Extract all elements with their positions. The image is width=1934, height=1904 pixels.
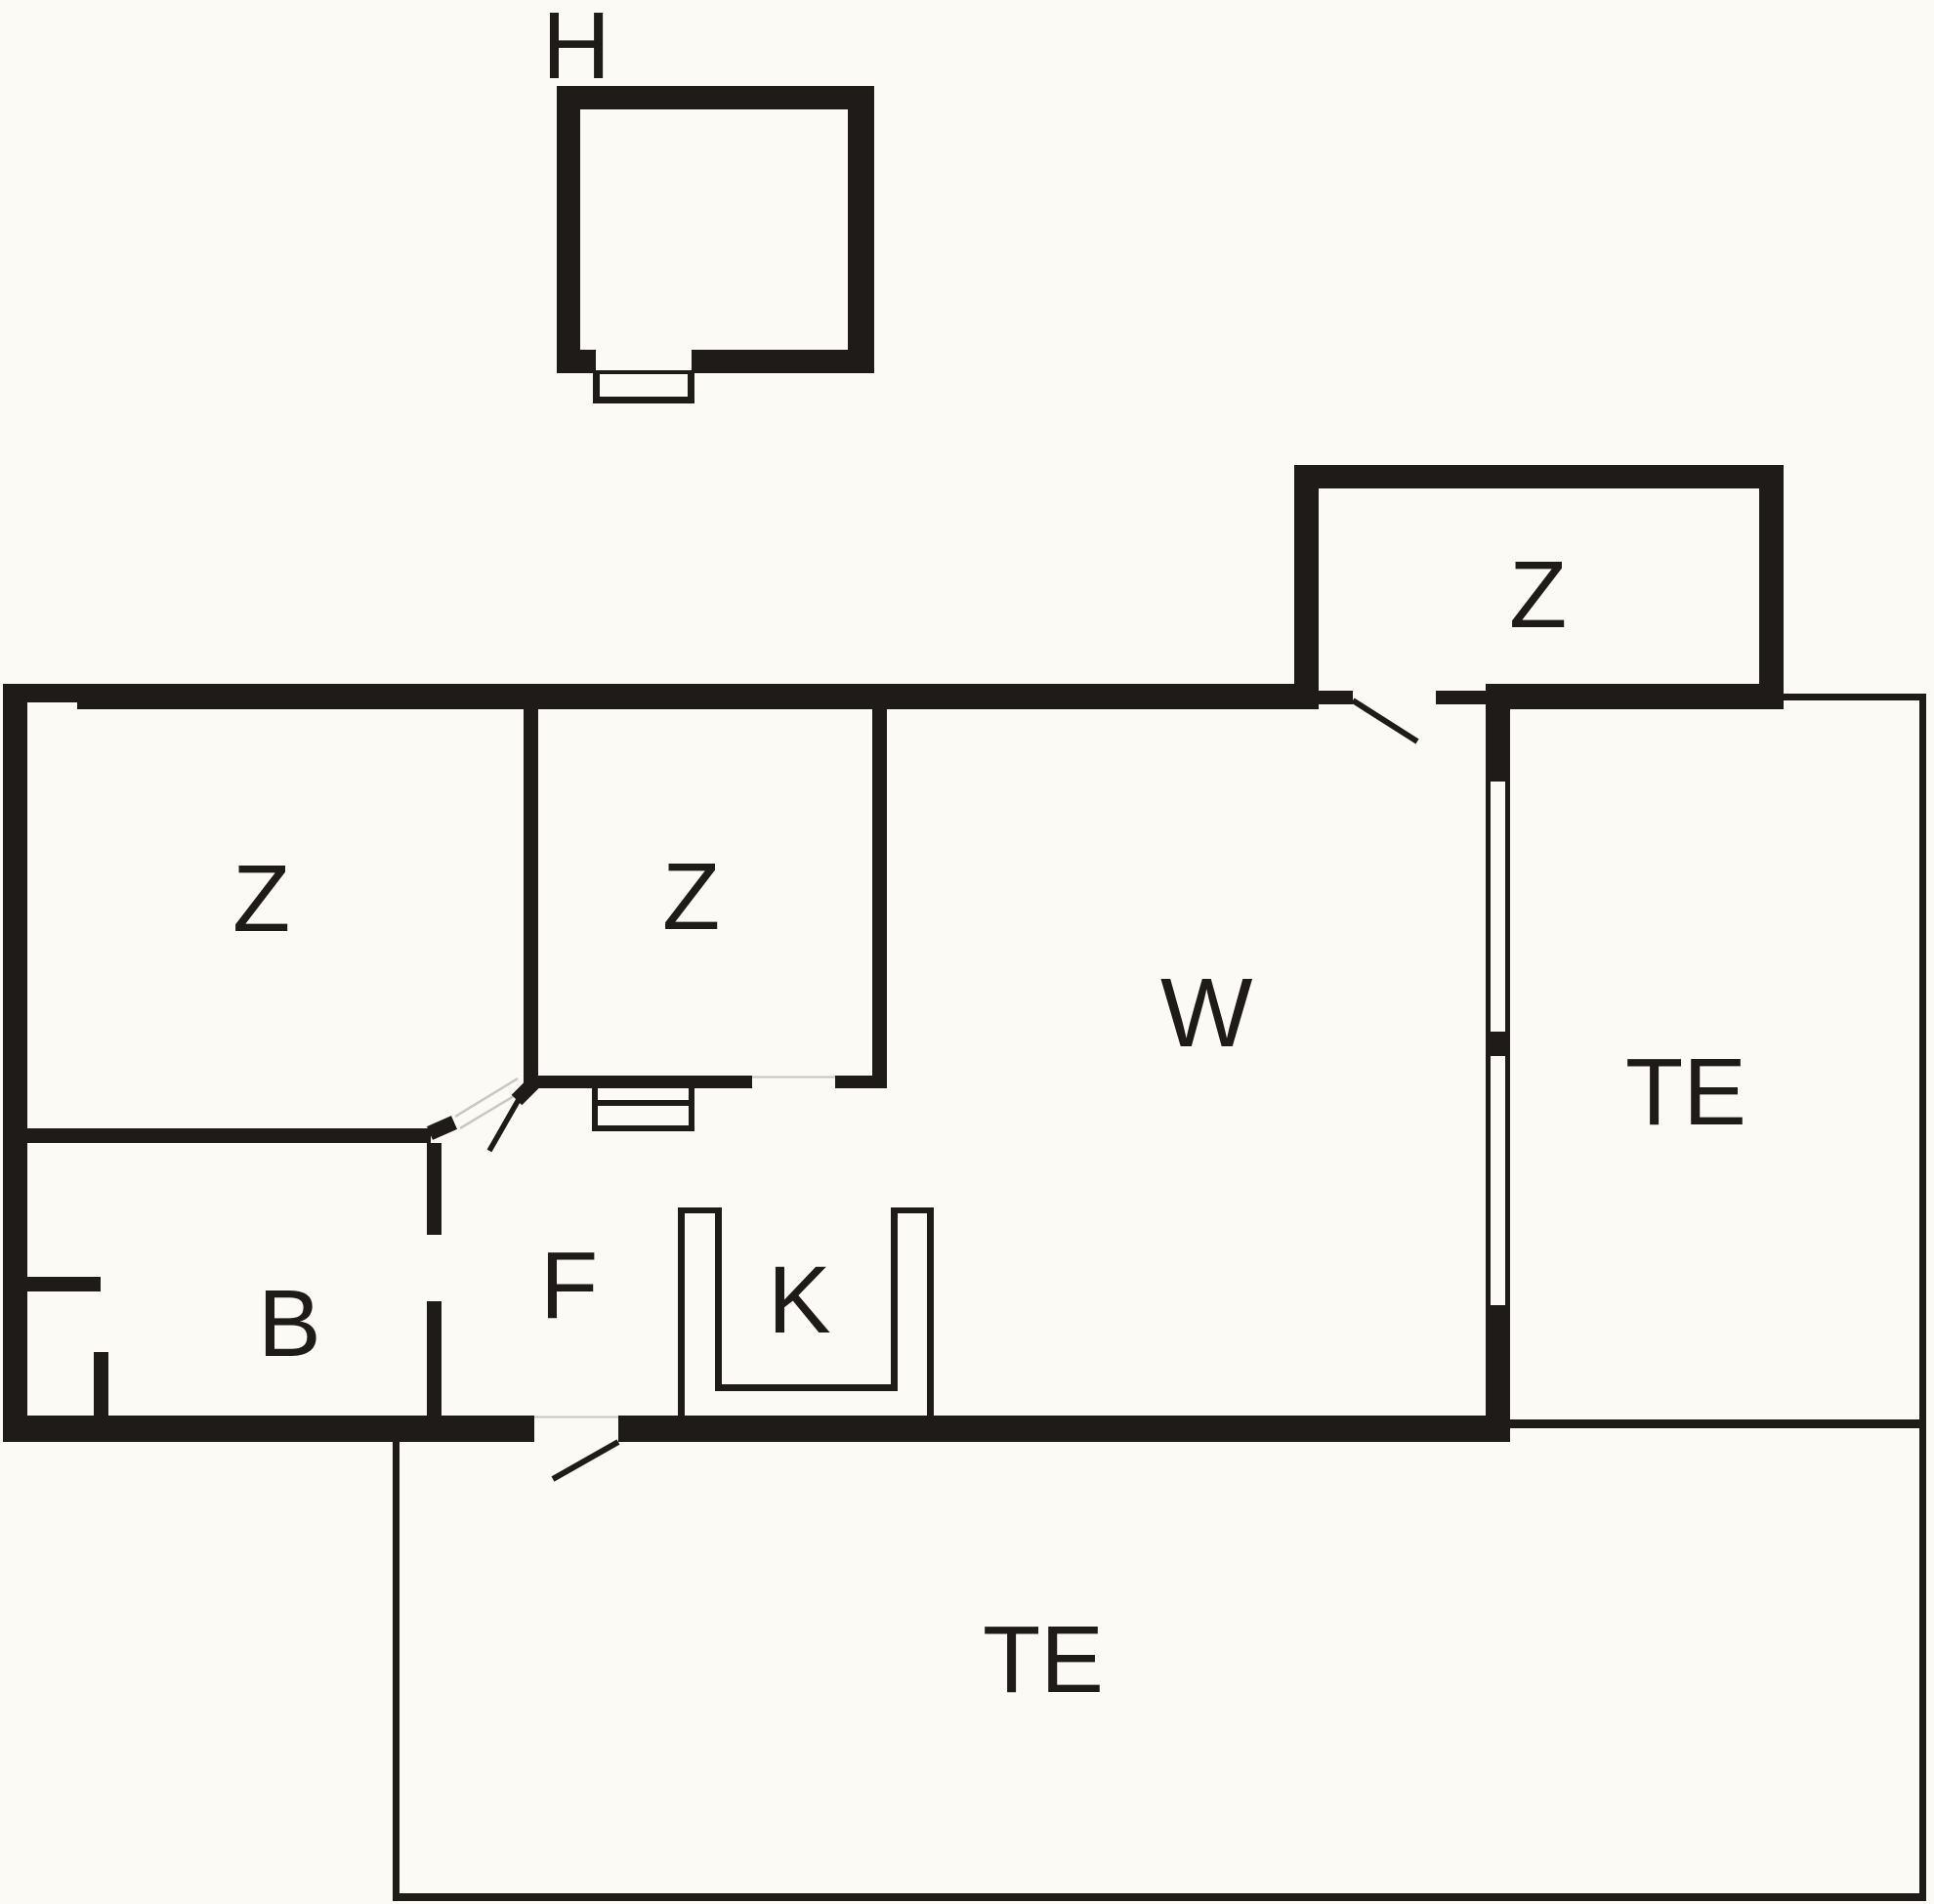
- svg-text:K: K: [768, 1247, 831, 1353]
- svg-text:Z: Z: [1509, 541, 1567, 648]
- svg-text:W: W: [1160, 958, 1253, 1068]
- svg-text:B: B: [258, 1270, 321, 1376]
- svg-text:F: F: [540, 1232, 598, 1338]
- svg-text:Z: Z: [232, 845, 290, 952]
- svg-text:TE: TE: [1625, 1038, 1746, 1145]
- svg-text:H: H: [542, 0, 610, 99]
- svg-text:Z: Z: [662, 843, 720, 950]
- svg-text:TE: TE: [983, 1606, 1104, 1713]
